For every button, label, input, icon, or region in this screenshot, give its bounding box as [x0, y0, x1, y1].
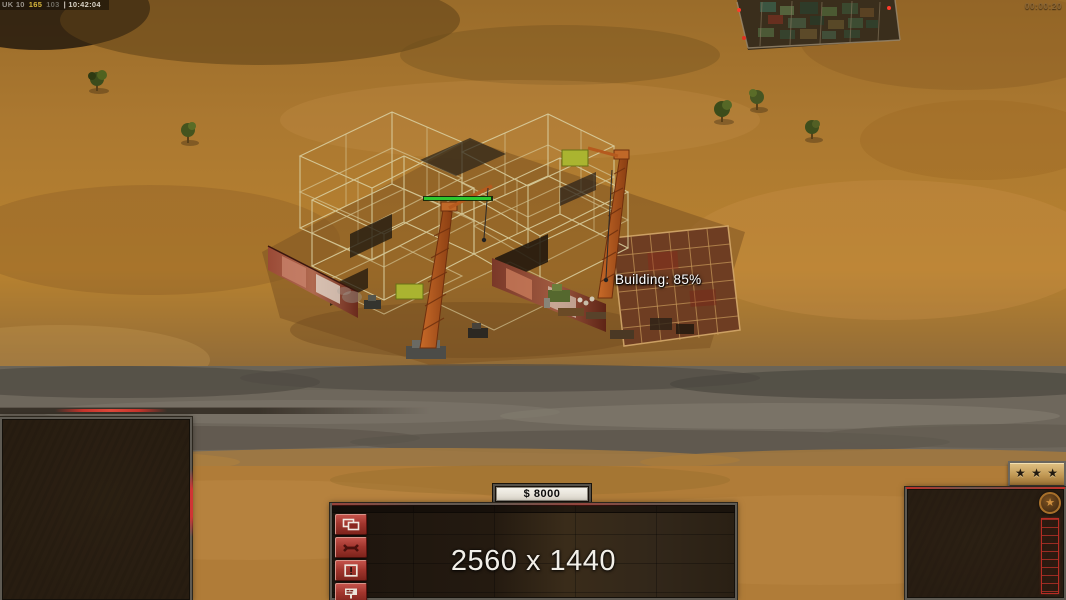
command-panel-top-strip	[332, 505, 735, 513]
command-panel: 2560 x 1440	[330, 503, 737, 600]
rank-panel: ★	[905, 487, 1066, 600]
hud-frame-bar	[0, 407, 430, 414]
debug-segment: 165	[29, 0, 42, 9]
money-value: $ 8000	[496, 487, 588, 501]
rank-experience-ladder	[1041, 518, 1059, 594]
minimap-panel[interactable]	[0, 417, 192, 600]
sell-icon[interactable]	[335, 583, 367, 600]
debug-segment: | 10:42:04	[64, 0, 101, 9]
resolution-watermark: 2560 x 1440	[332, 545, 735, 578]
debug-segment: UK 10	[2, 0, 25, 9]
hud-frame-red-accent	[55, 409, 167, 412]
match-timer: 00:00:20	[1025, 1, 1062, 11]
rank-star-emblem: ★	[1039, 492, 1061, 514]
game-viewport[interactable]: UK 10165103| 10:42:04 00:00:20 Building:…	[0, 0, 1066, 600]
building-progress-label: Building: 85%	[615, 272, 701, 287]
debug-segment: 103	[46, 0, 59, 9]
health-bar	[423, 196, 493, 201]
rank-stars-button[interactable]: ★ ★ ★	[1008, 461, 1066, 487]
debug-overlay: UK 10165103| 10:42:04	[0, 0, 109, 10]
minimap-red-accent	[190, 469, 193, 537]
windows-stack-icon[interactable]	[335, 514, 367, 535]
